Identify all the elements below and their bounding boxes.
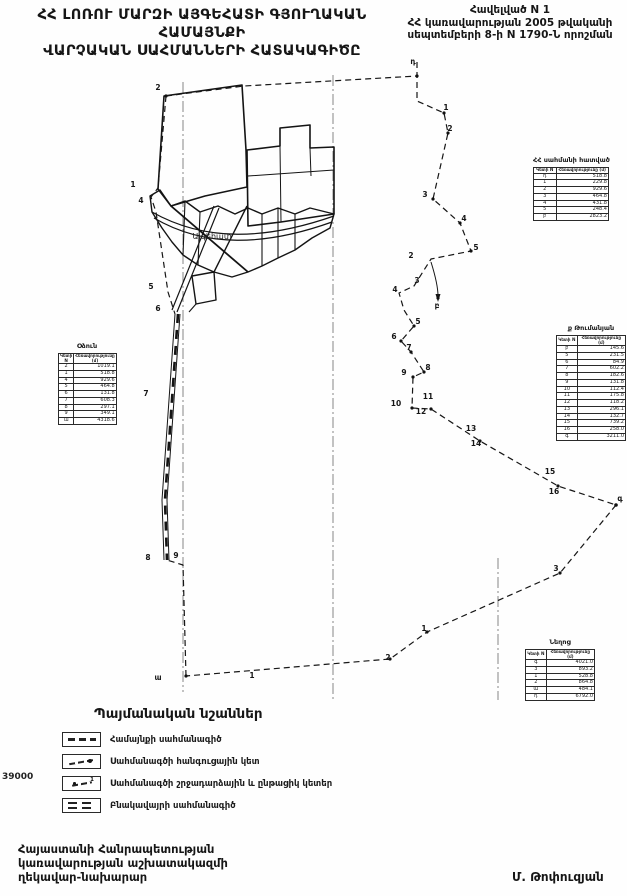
boundary-north-path (166, 76, 417, 96)
legend: Պայմանական նշաններ Համայնքի սահմանագիծ Ս… (62, 706, 382, 813)
junction-point-symbol-icon (62, 754, 101, 769)
boundary-point (410, 406, 413, 409)
coords-table-odzun: Օձուն Կետի NՀեռավորությունը (մ)21019.115… (58, 342, 116, 425)
boundary-point-label: 3 (422, 191, 427, 199)
boundary-point-label: 4 (138, 197, 143, 205)
coords-table-body: Կետի NՀեռավորությունը (մ)գ4021.03893.215… (526, 650, 595, 701)
coords-table-body: Կետի NՀեռավորությունը (մ)21019.11518.849… (59, 354, 117, 425)
boundary-point-label: 11 (423, 393, 433, 401)
boundary-point-label: 13 (466, 425, 476, 433)
boundary-point-label: 8 (145, 554, 150, 562)
scale-note: 39000 (2, 772, 33, 782)
boundary-point-label: գ (617, 495, 622, 503)
boundary-point-label: 9 (401, 369, 406, 377)
boundary-point-label: 5 (473, 244, 478, 252)
boundary-point-label: 1 (249, 672, 254, 680)
coords-table-title: Օձուն (58, 342, 116, 350)
coords-table-header: Հեռավորությունը (մ) (546, 650, 594, 660)
boundary-point-label: 7 (406, 344, 411, 352)
boundary-point-label: 2 (447, 125, 452, 133)
coords-table-title: ք Թումանյան (556, 324, 626, 332)
coords-table-north: ՀՀ սահմանի հատված Կետի NՀեռավորությունը … (533, 156, 609, 221)
boundary-point-label: 14 (471, 440, 481, 448)
settlement-outline (150, 85, 334, 312)
boundary-point (429, 407, 432, 410)
boundary-point-label: 2 (385, 654, 390, 662)
boundary-point-label: ա (154, 674, 161, 682)
table-row: բ2823.2 (534, 214, 609, 221)
boundary-point-label: 15 (545, 468, 555, 476)
coords-table-body: Կետի NՀեռավորությունը (մ)բ145.65231.5684… (557, 336, 626, 441)
legend-item-label: Համայնքի սահմանագիծ (110, 735, 222, 745)
table-row: գ3211.0 (557, 433, 626, 440)
boundary-point (431, 197, 434, 200)
coords-table-body: Կետի NՀեռավորությունը (մ)դ518.81229.8292… (534, 168, 609, 221)
boundary-point (614, 503, 618, 507)
boundary-point (558, 571, 561, 574)
road-edge-path (167, 314, 180, 560)
grid-lines (183, 75, 498, 700)
cadastral-map-page: { "header": { "title_line1": "ՀՀ ԼՈՌՈՒ Մ… (0, 0, 627, 896)
boundary-point-label: 5 (415, 318, 420, 326)
boundary-point-label: 7 (143, 390, 148, 398)
table-cell: 2823.2 (556, 214, 609, 221)
boundary-point-label: 2 (155, 84, 160, 92)
coords-table-header: Հեռավորությունը (մ) (577, 336, 625, 346)
boundary-point-label: 6 (155, 305, 160, 313)
boundary-point-label: դ (410, 58, 415, 66)
coords-table-neghots: Նեղոց Կետի NՀեռավորությունը (մ)գ4021.038… (525, 638, 595, 701)
legend-item-settlement-boundary: Բնակավայրի սահմանագիծ (62, 798, 382, 813)
turning-points-symbol-icon: 1 (62, 776, 101, 791)
coords-table-tumanyan: ք Թումանյան Կետի NՀեռավորությունը (մ)բ14… (556, 324, 626, 441)
coords-table-header: Կետի N (526, 650, 547, 660)
table-cell: 3211.0 (577, 433, 625, 440)
table-cell: 6792.0 (546, 693, 594, 700)
village-street-path (189, 304, 196, 312)
village-core-path (150, 190, 334, 277)
coords-table-header: Կետի N (59, 354, 74, 364)
boundary-point-label: 16 (549, 488, 559, 496)
boundary-point (469, 249, 472, 252)
table-cell: դ (526, 693, 547, 700)
table-cell: ա (59, 418, 74, 425)
table-cell: 4318.6 (74, 418, 116, 425)
coords-table: Կետի NՀեռավորությունը (մ)21019.11518.849… (58, 353, 117, 425)
spur-path (431, 262, 438, 296)
village-block-path (158, 85, 247, 206)
coords-table: Կետի NՀեռավորությունը (մ)դ518.81229.8292… (533, 167, 609, 221)
boundary-point-label: 10 (391, 400, 401, 408)
boundary-point-label: 4 (392, 286, 397, 294)
boundary-point (442, 111, 445, 114)
village-lobe-path (192, 272, 216, 304)
boundary-point (411, 375, 414, 378)
road-edge-path (162, 314, 175, 560)
boundary-point-label: 4 (461, 215, 466, 223)
coords-table-title: ՀՀ սահմանի հատված (533, 156, 609, 164)
community-boundary (151, 62, 616, 676)
boundary-point-label: բ (435, 302, 440, 310)
issuer-line1: Հայաստանի Հանրապետության (18, 843, 228, 857)
legend-item-turning-points: 1 Սահմանագծի շրջադարձային և ընթացիկ կետե… (62, 776, 382, 791)
village-road-path (154, 218, 332, 240)
issuer-line2: կառավարության աշխատակազմի (18, 857, 228, 871)
boundary-point-label: 8 (425, 364, 430, 372)
boundary-point-label: 12 (416, 408, 426, 416)
junction-spur (431, 262, 441, 302)
boundary-point-label: 3 (553, 565, 558, 573)
table-cell: գ (557, 433, 578, 440)
boundary-point-label: 1 (130, 181, 135, 189)
table-cell: բ (534, 214, 557, 221)
legend-item-junction-point: Սահմանագծի հանգուցային կետ (62, 754, 382, 769)
coords-table-header: Հեռավորությունը (մ) (74, 354, 116, 364)
legend-item-label: Սահմանագծի հանգուցային կետ (110, 757, 260, 767)
boundary-point-label: 1 (443, 104, 448, 112)
community-boundary-symbol-icon (62, 732, 101, 747)
road-south (162, 314, 180, 560)
table-row: ա4318.6 (59, 418, 117, 425)
boundary-point-label: 9 (173, 552, 178, 560)
boundary-west-upper-path (151, 96, 175, 314)
settlement-name-label: Այգեհատ (192, 232, 231, 241)
boundary-point-label: 3 (414, 277, 419, 285)
issuer-line3: ղեկավար-նախարար (18, 871, 228, 885)
coords-table: Կետի NՀեռավորությունը (մ)բ145.65231.5684… (556, 335, 626, 441)
legend-title: Պայմանական նշաններ (94, 706, 382, 722)
boundary-point-label: 6 (391, 333, 396, 341)
issuer-block: Հայաստանի Հանրապետության կառավարության ա… (18, 843, 228, 884)
legend-item-community-boundary: Համայնքի սահմանագիծ (62, 732, 382, 747)
boundary-point (399, 339, 402, 342)
boundary-point (415, 74, 418, 77)
coords-table-title: Նեղոց (525, 638, 595, 646)
legend-item-label: Բնակավայրի սահմանագիծ (110, 801, 236, 811)
coords-table-header: Կետի N (557, 336, 578, 346)
signature: Մ. Թոփուզյան (512, 870, 604, 884)
coords-table: Կետի NՀեռավորությունը (մ)գ4021.03893.215… (525, 649, 595, 701)
legend-item-label: Սահմանագծի շրջադարձային և ընթացիկ կետեր (110, 779, 332, 789)
boundary-point-label: 1 (421, 625, 426, 633)
boundary-point (436, 296, 439, 299)
boundary-point-label: 2 (408, 252, 413, 260)
boundary-point (184, 674, 187, 677)
settlement-boundary-symbol-icon (62, 798, 101, 813)
table-row: դ6792.0 (526, 693, 595, 700)
boundary-point (164, 94, 167, 97)
boundary-point-label: 5 (148, 283, 153, 291)
